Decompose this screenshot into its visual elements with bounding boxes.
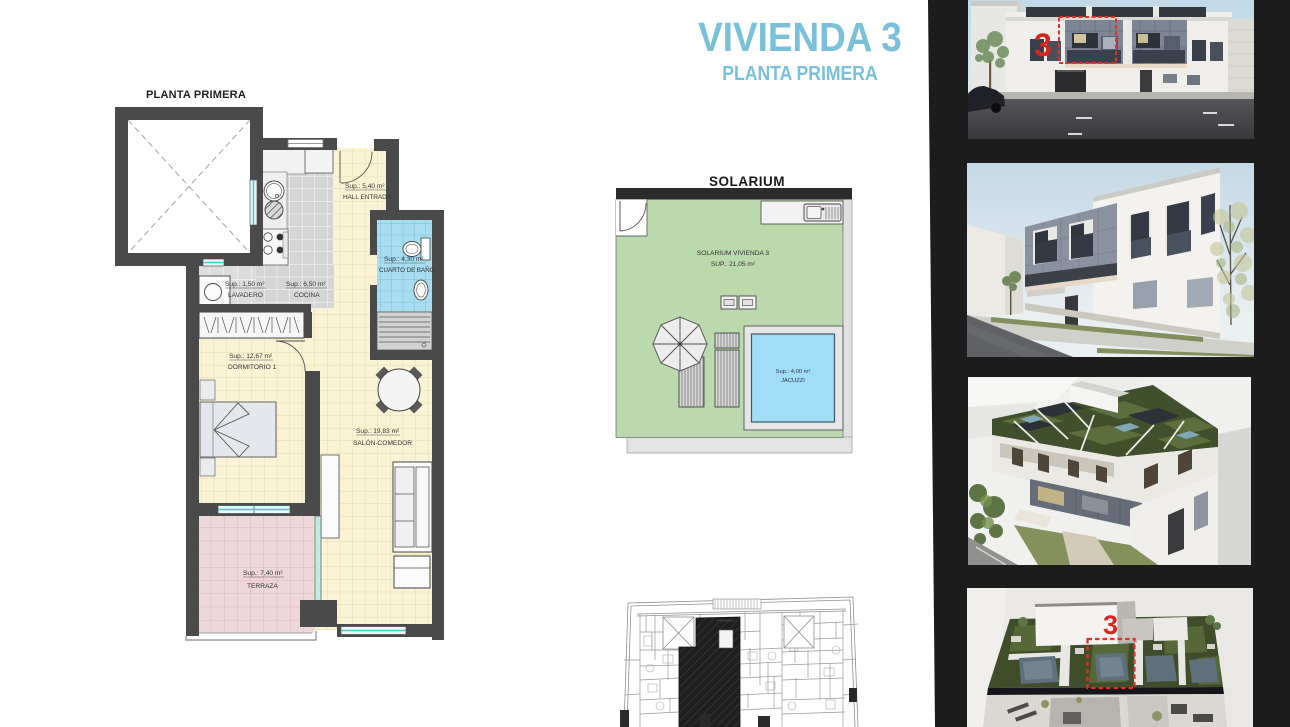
svg-text:Sup.: 5,40 m²: Sup.: 5,40 m² [345, 183, 385, 190]
svg-text:COCINA: COCINA [294, 292, 320, 299]
svg-text:JACUZZI: JACUZZI [781, 378, 805, 384]
svg-text:SALÓN-COMEDOR: SALÓN-COMEDOR [353, 438, 412, 447]
svg-text:3: 3 [1034, 27, 1052, 63]
svg-text:VIVIENDA 3: VIVIENDA 3 [716, 619, 735, 623]
svg-text:CUARTO DE BAÑO: CUARTO DE BAÑO [379, 267, 435, 274]
svg-text:SOLARIUM VIVIENDA 3: SOLARIUM VIVIENDA 3 [697, 250, 770, 257]
svg-text:3: 3 [1103, 610, 1118, 640]
svg-text:Sup.: 7,40 m²: Sup.: 7,40 m² [243, 570, 283, 577]
svg-text:SOLARIUM: SOLARIUM [709, 174, 785, 189]
svg-text:Sup.: 19,83 m²: Sup.: 19,83 m² [356, 428, 400, 435]
svg-text:HALL ENTRADA: HALL ENTRADA [343, 194, 392, 201]
svg-text:DORMITORIO 1: DORMITORIO 1 [228, 364, 277, 371]
svg-text:SUP.: 21,05 m²: SUP.: 21,05 m² [711, 261, 756, 268]
svg-text:LAVADERO: LAVADERO [228, 292, 263, 299]
svg-text:Sup.: 6,50 m²: Sup.: 6,50 m² [286, 281, 326, 288]
svg-text:TERRAZA: TERRAZA [247, 583, 278, 590]
svg-text:Sup.: 4,00 m²: Sup.: 4,00 m² [776, 369, 811, 375]
svg-text:Sup.: 1,50 m²: Sup.: 1,50 m² [225, 281, 265, 288]
svg-text:Sup.: 4,30 m²: Sup.: 4,30 m² [384, 256, 424, 263]
svg-text:Sup.: 12,67 m²: Sup.: 12,67 m² [229, 353, 273, 360]
